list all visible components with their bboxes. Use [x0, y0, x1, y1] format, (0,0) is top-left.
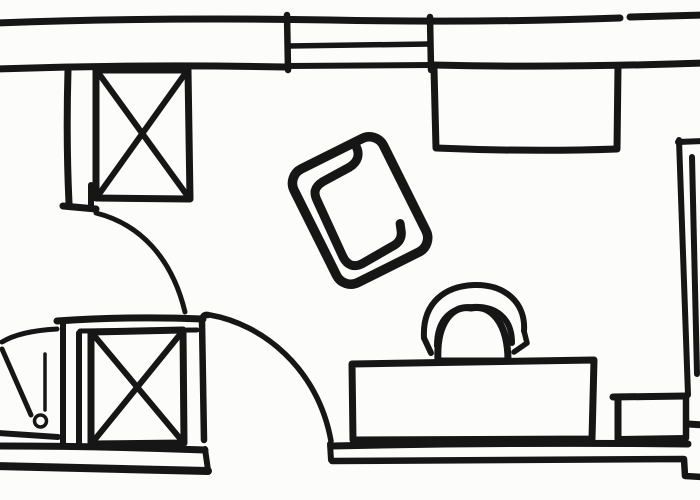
- bottom-wall-left-top: [0, 446, 205, 450]
- desk: [352, 360, 594, 440]
- top-wall-inner-right: [433, 63, 700, 66]
- pier-left-line: [67, 70, 69, 203]
- window-jamb-left: [287, 15, 288, 70]
- wardrobe-bottom: [91, 330, 184, 444]
- cabinet: [434, 67, 618, 150]
- side-table: [613, 396, 686, 439]
- chair-seat-dome: [438, 307, 508, 361]
- pier-end-cap: [63, 206, 96, 209]
- right-wall-outer-line: [679, 140, 688, 395]
- window-sill-line: [288, 65, 431, 66]
- side-table-bottom: [618, 438, 686, 439]
- bottom-door: [202, 315, 331, 441]
- bottom-door-arc: [210, 315, 331, 441]
- chair-back-right-cap: [514, 331, 527, 352]
- right-wall-inner-line: [692, 157, 697, 374]
- wardrobe-top: [96, 70, 190, 199]
- bottom-wall-left-bottom: [0, 466, 208, 471]
- top-wall-outer-right: [630, 15, 700, 17]
- bathroom-door-curve: [2, 329, 57, 342]
- bathroom-diagonal-line: [2, 349, 31, 415]
- entry-pier: [63, 70, 96, 209]
- floor-plan-drawing: [0, 0, 700, 500]
- right-wall-top-cap: [678, 141, 700, 142]
- top-wall-outer-left: [0, 18, 620, 23]
- chair-back-left-cap: [424, 338, 431, 353]
- bottom-wall-right-top: [332, 443, 688, 446]
- bathroom-fixture-knob: [35, 415, 47, 427]
- bottom-door-leaf: [202, 315, 208, 440]
- sketch-canvas: [0, 0, 700, 500]
- right-wall-tab: [688, 424, 700, 425]
- bottom-wall: [0, 443, 700, 477]
- top-wall: [0, 15, 700, 69]
- hall-door-arc: [96, 213, 185, 312]
- bottom-wall-left-cap: [205, 449, 208, 470]
- side-table-top: [613, 396, 686, 397]
- bathroom-top-wall: [57, 318, 203, 321]
- bottom-wall-right-bottom: [332, 459, 700, 477]
- bathroom-floor-line: [0, 433, 58, 437]
- armchair: [287, 131, 433, 289]
- right-wall: [678, 140, 700, 425]
- desk-chair: [424, 285, 527, 361]
- window-mid-line: [288, 44, 430, 46]
